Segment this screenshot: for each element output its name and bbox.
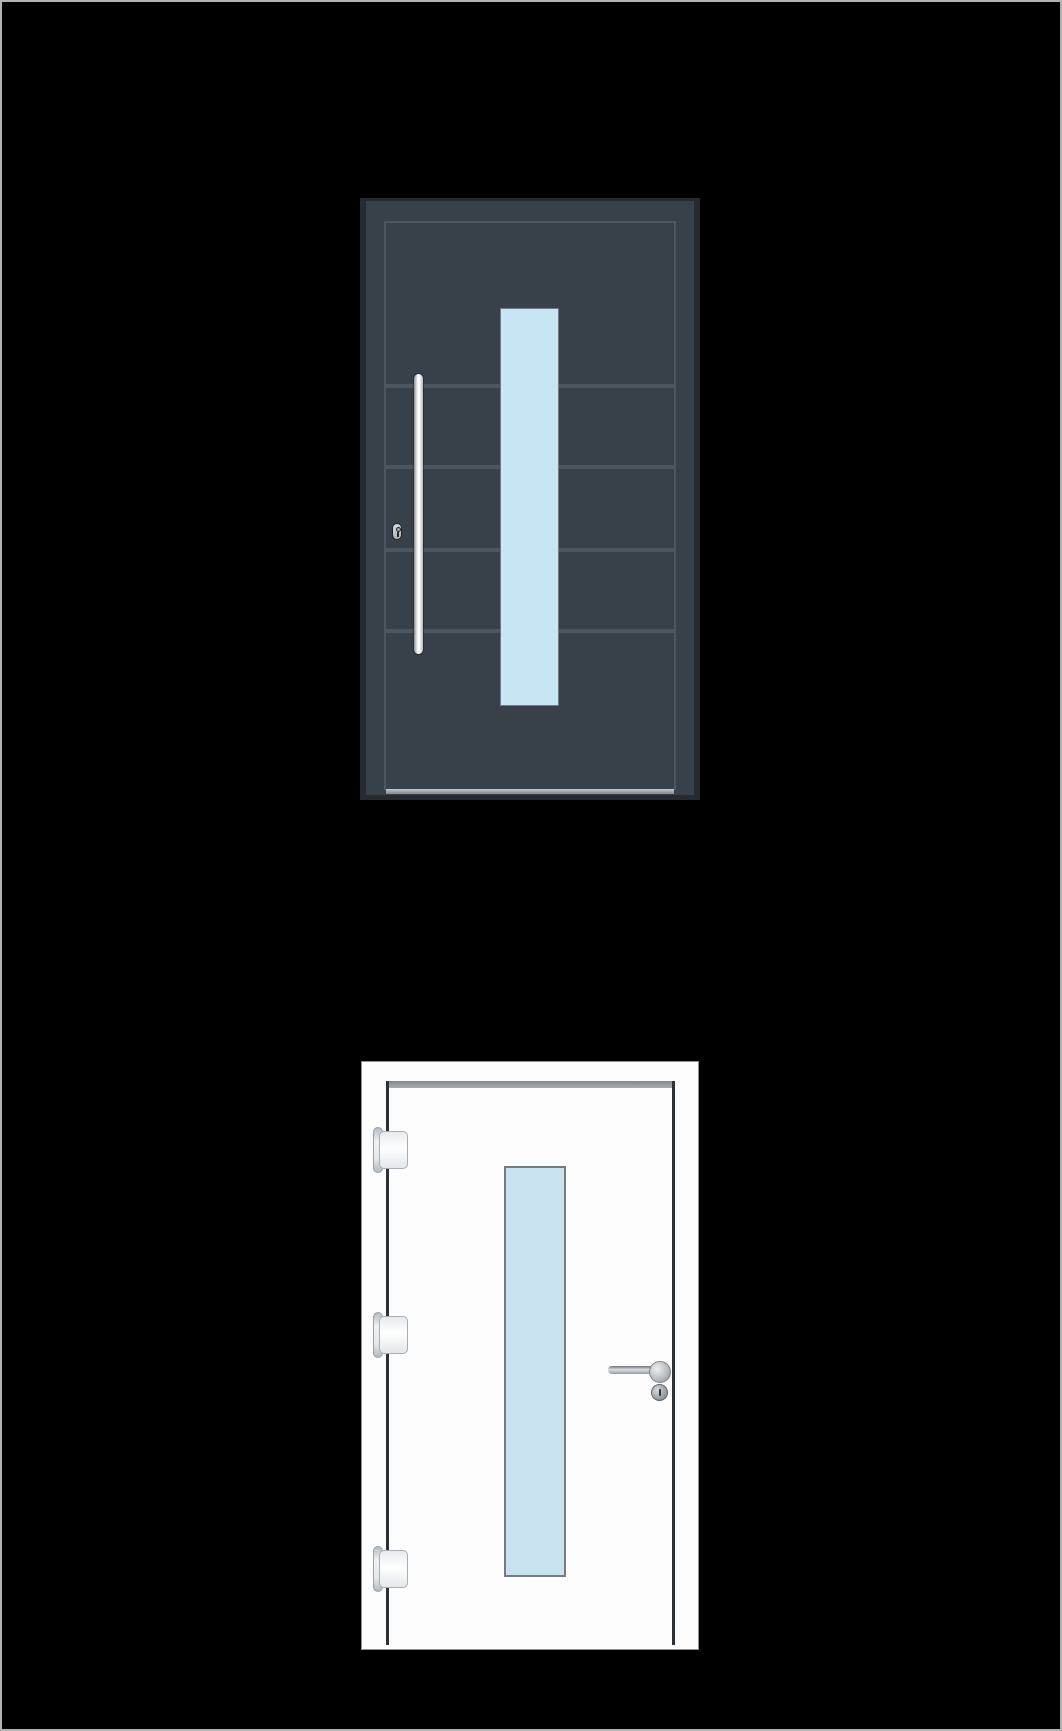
door-gap-line-right [672, 1081, 675, 1645]
handle-rosette [649, 1361, 671, 1383]
glazing-strip-interior [504, 1166, 566, 1577]
threshold-sill [386, 789, 674, 794]
privacy-knob [651, 1384, 668, 1401]
hinge-bottom [373, 1546, 408, 1592]
door-preview-exterior [360, 198, 700, 800]
door-preview-interior [361, 1061, 699, 1650]
hinge-middle [373, 1312, 408, 1358]
hinge-body [379, 1550, 408, 1588]
lock-cylinder-keyhole-icon [392, 523, 402, 540]
bar-handle [414, 374, 423, 654]
glazing-strip-exterior [500, 308, 559, 706]
hinge-body [379, 1131, 408, 1169]
frame-rebate-top [386, 1081, 674, 1088]
hinge-body [379, 1316, 408, 1354]
configurator-canvas [0, 0, 1062, 1731]
hinge-top [373, 1127, 408, 1173]
